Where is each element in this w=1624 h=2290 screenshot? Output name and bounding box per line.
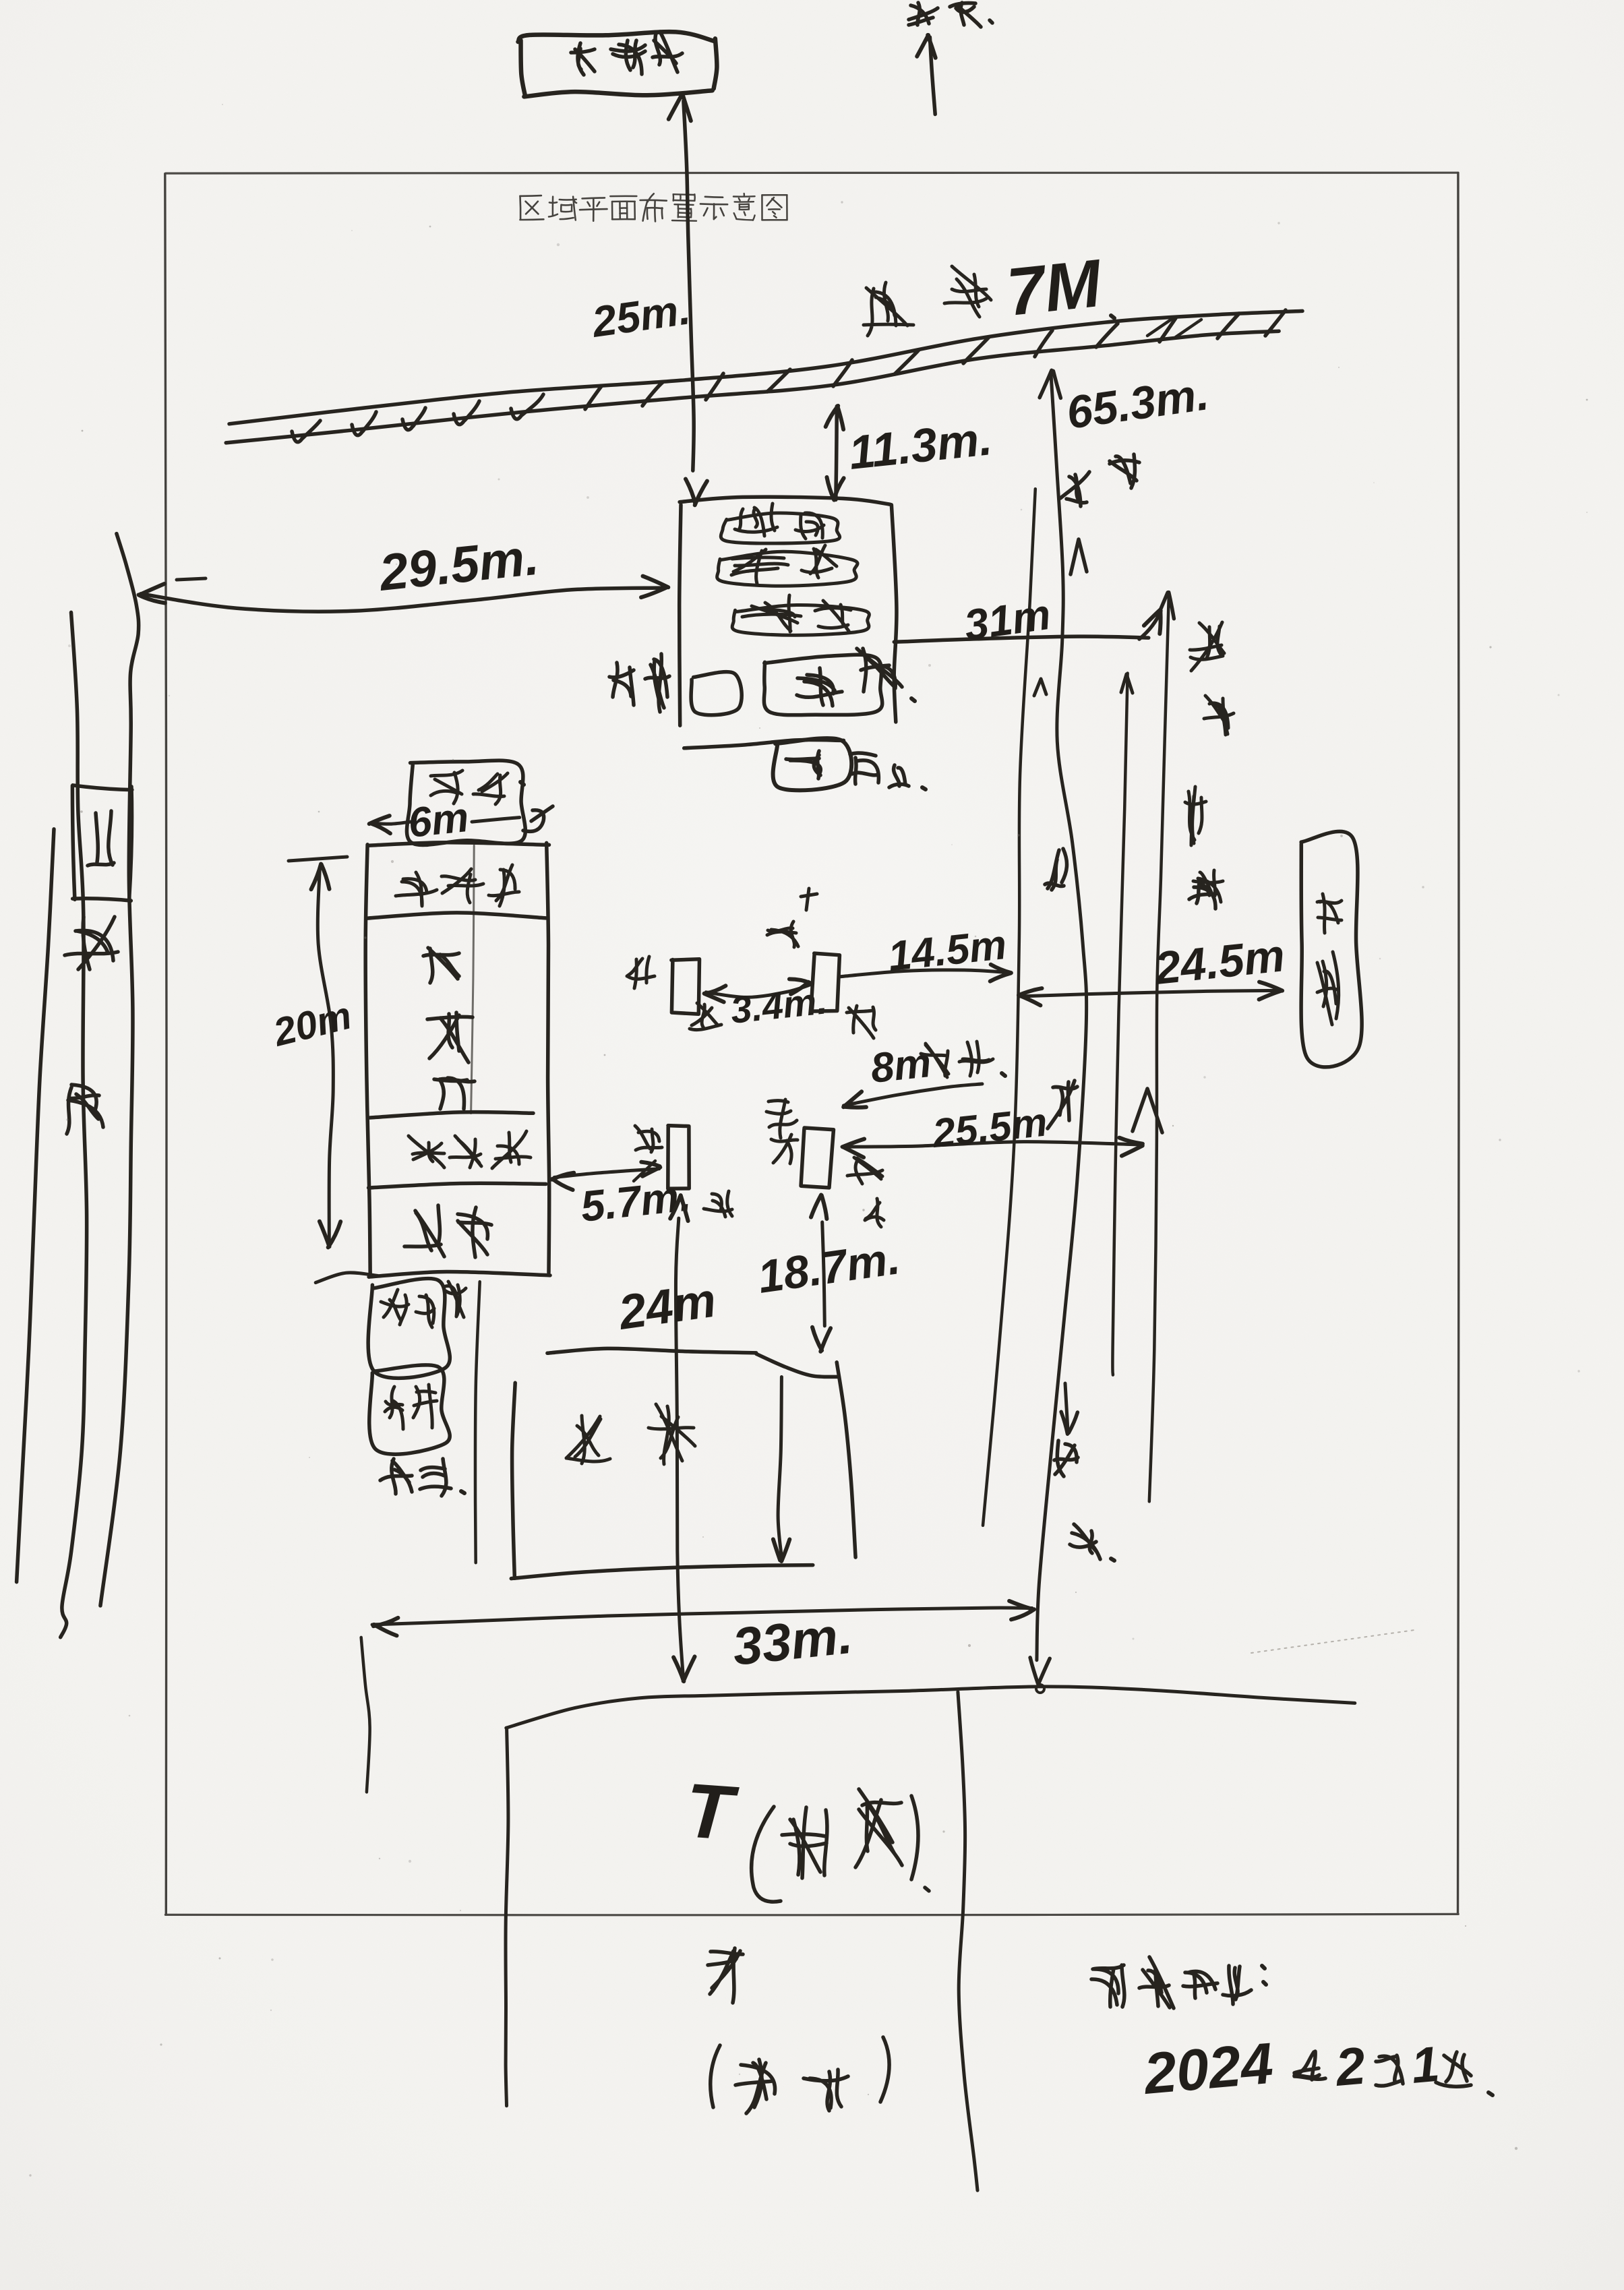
svg-text:2: 2 [1332, 2035, 1368, 2097]
svg-text:2024: 2024 [1140, 2031, 1275, 2107]
svg-text:7M: 7M [1004, 245, 1107, 330]
svg-text:1: 1 [1409, 2036, 1441, 2094]
svg-text:6m: 6m [406, 794, 471, 847]
svg-text:8m: 8m [868, 1039, 933, 1092]
svg-text:33m.: 33m. [730, 1605, 855, 1677]
